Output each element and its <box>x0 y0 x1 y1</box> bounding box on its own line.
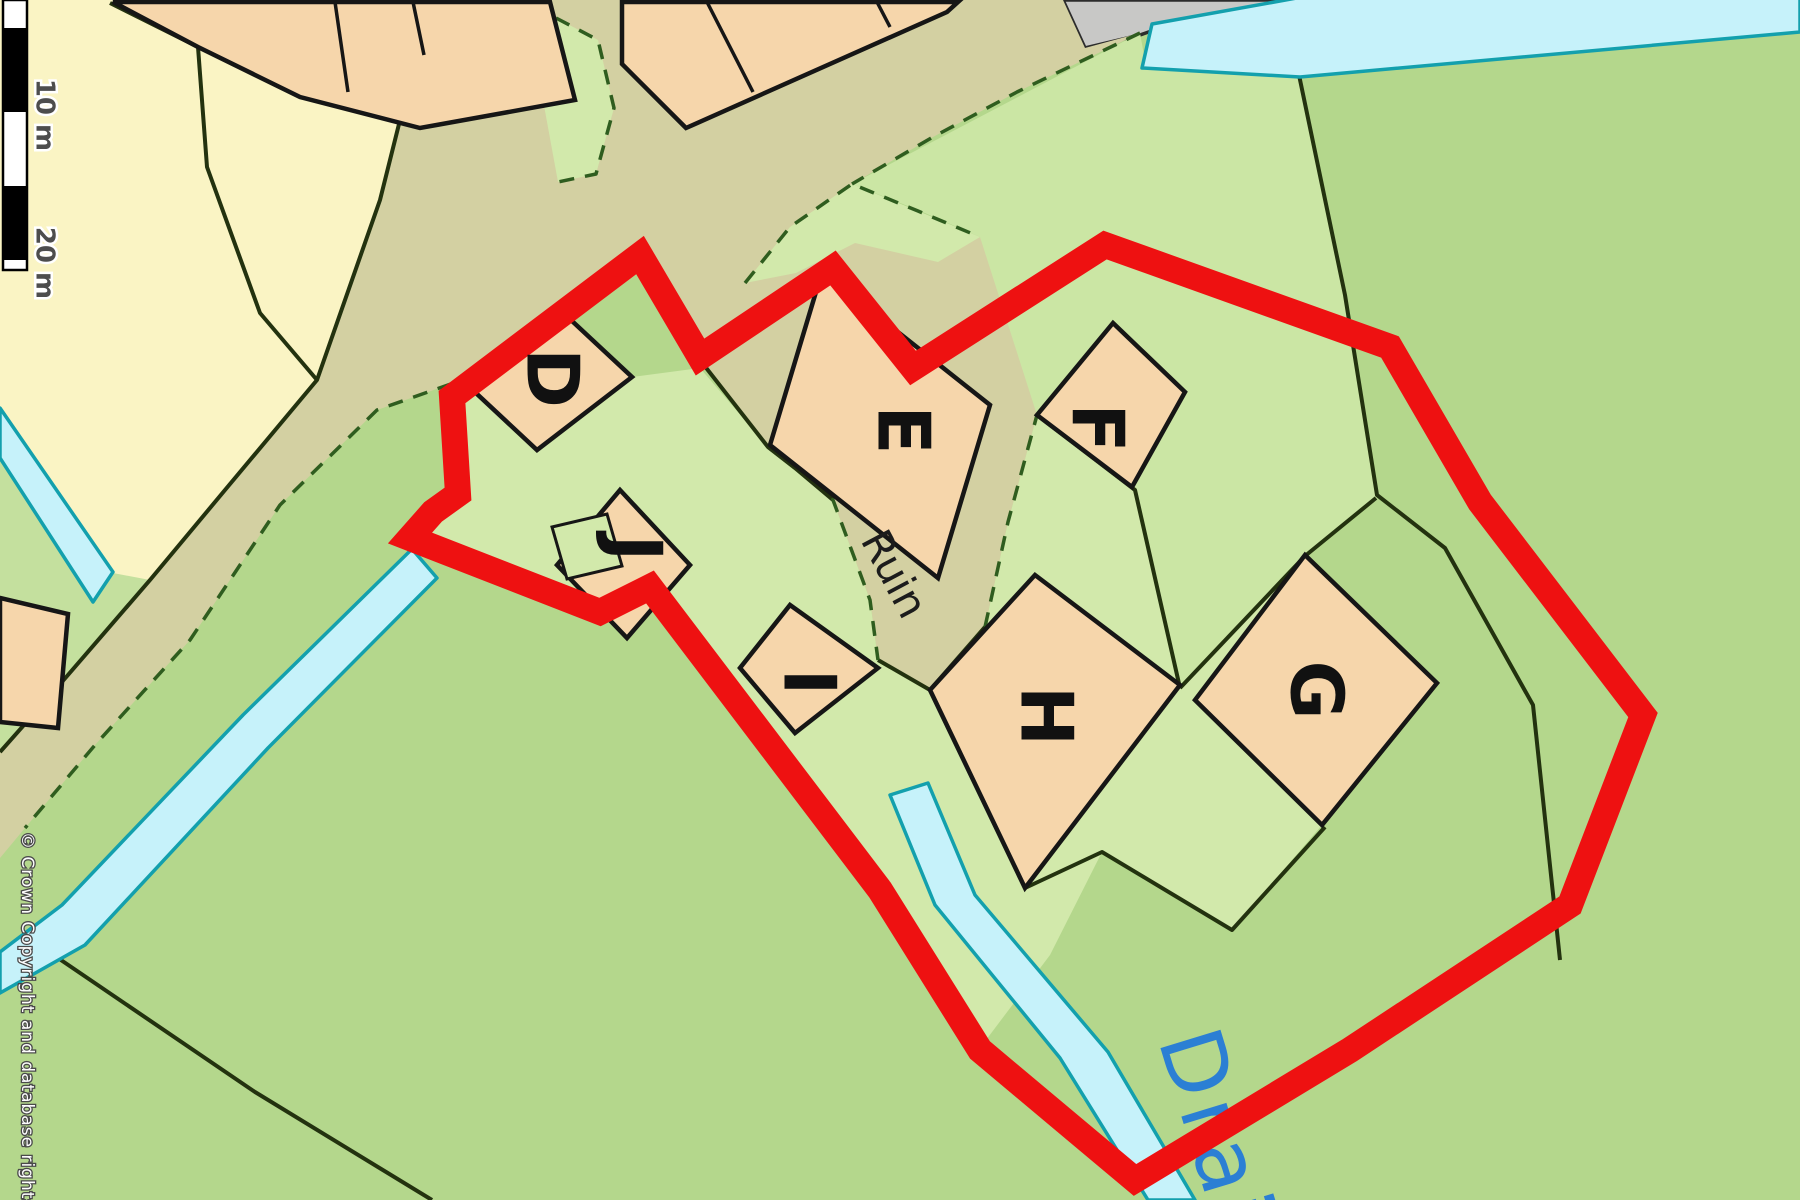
scale-bar-segment-1 <box>3 28 27 112</box>
building-label-g: G <box>1274 660 1358 719</box>
building-label-f: F <box>1055 403 1139 452</box>
scale-label-20m: 20 m <box>30 227 60 299</box>
scale-bar-segment-2 <box>3 186 27 260</box>
building-label-i: I <box>767 669 851 696</box>
scale-label-10m: 10 m <box>30 79 60 151</box>
building-label-d: D <box>510 348 594 408</box>
map-canvas: Ruin Drain D E F G H I J 10 m 20 m © Cro… <box>0 0 1800 1200</box>
building-west-edge <box>0 598 68 728</box>
building-label-j: J <box>593 530 677 562</box>
copyright-attribution: © Crown Copyright and database rights <box>17 832 37 1200</box>
site-location-plan: Ruin Drain D E F G H I J 10 m 20 m © Cro… <box>0 0 1800 1200</box>
building-label-h: H <box>1004 686 1088 746</box>
building-label-e: E <box>861 405 945 454</box>
